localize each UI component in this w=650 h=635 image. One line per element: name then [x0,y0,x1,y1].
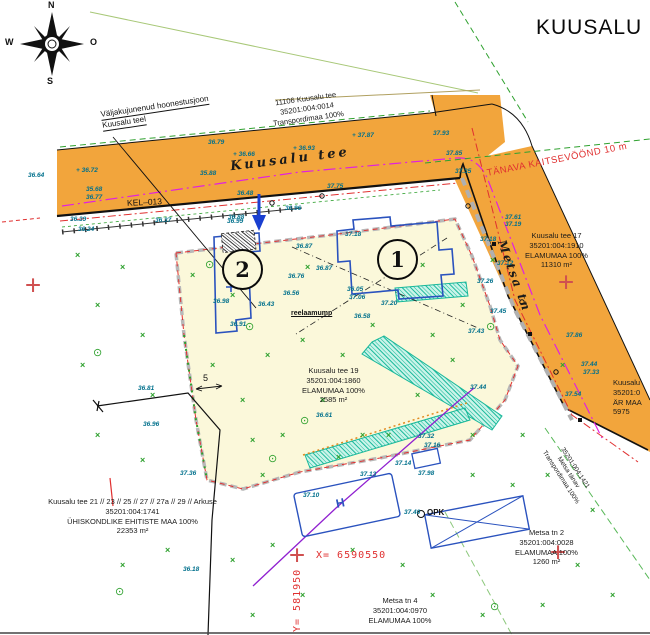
spot-elevation: 36.39 [70,216,86,223]
parcel-line: 35201:004:1910 [504,241,609,251]
bush-icon: × [150,390,155,400]
tree-icon: ⊙ [490,600,499,613]
spot-elevation: 37.93 [433,130,449,137]
manhole-icon [270,201,274,205]
spot-elevation: 37.44 [470,384,486,391]
tree-icon: ⊙ [93,346,102,359]
bush-icon: × [340,350,345,360]
bush-icon: × [510,480,515,490]
bush-icon: × [545,470,550,480]
grid-cross-icon: + [289,540,305,572]
spot-elevation: 36.99 [227,218,243,225]
existing-building-h [294,473,401,537]
bush-icon: × [80,360,85,370]
parcel-line: 22353 m² [15,526,250,536]
spot-elevation: 36.58 [354,313,370,320]
bush-icon: × [230,290,235,300]
spot-elevation: 36.79 [208,139,224,146]
compass-north-label: N [48,0,55,10]
spot-elevation: + 36.72 [76,167,98,174]
spot-elevation: 37.19 [505,221,521,228]
parcel-info-kuusalu-19: Kuusalu tee 19 35201:004:1860 ELAMUMAA 1… [281,366,386,405]
grid-cross-icon: + [25,270,41,302]
bush-icon: × [140,330,145,340]
spot-elevation: 36.56 [283,290,299,297]
bush-icon: × [270,540,275,550]
spot-elevation: 37.13 [360,471,376,478]
bush-icon: × [420,260,425,270]
spot-elevation: 36.98 [213,298,229,305]
tree-icon: ⊙ [268,452,277,465]
spot-elevation: + 37.87 [352,132,374,139]
parcel-line: 1260 m² [494,557,599,567]
spot-elevation: 37.75 [327,183,343,190]
spot-elevation: 37.36 [180,470,196,477]
parcel-line: Kuusalu tee 19 [281,366,386,376]
bush-icon: × [400,560,405,570]
bush-icon: × [460,300,465,310]
kel-annotation: KEL–013 [127,196,162,208]
parcel-line: 5975 [613,407,650,417]
parcel-line: Kuusalu [613,378,650,388]
tree-icon: ⊙ [115,585,124,598]
spot-elevation: 36.18 [183,566,199,573]
building-number-1: 1 [377,239,418,280]
tree-icon: ⊙ [300,414,309,427]
bush-icon: × [450,355,455,365]
bush-icon: × [480,610,485,620]
bush-icon: × [336,452,341,462]
spot-elevation: 35.68 [86,186,102,193]
parcel-info-kuusalu-21: Kuusalu tee 21 // 23 // 25 // 27 // 27a … [15,497,250,536]
spot-elevation: 37.61 [505,214,521,221]
parcel-line: ELAMUMAA 100% [504,251,609,261]
parcel-line: 35201:004:0028 [494,538,599,548]
spot-elevation: 37.54 [565,391,581,398]
spot-elevation: 37.44 [581,361,597,368]
bush-icon: × [360,430,365,440]
parcel-line: ELAMUMAA 100% [281,386,386,396]
parcel-info-right-edge: Kuusalu 35201:0 ÄR MAA 5975 [613,378,650,417]
compass-east-label: O [90,37,97,47]
parcel-line: 35201:004:1860 [281,376,386,386]
building-number-1-text: 1 [390,247,405,272]
parcel-line: 2585 m² [281,395,386,405]
spot-elevation: 36.96 [143,421,159,428]
parcel-line: Metsa tn 4 [330,596,470,606]
spot-elevation: 37.45 [490,308,506,315]
site-plan-canvas: KUUSALU N S W O Kuusalu tee Metsa tn Väl… [0,0,650,635]
bush-icon: × [165,545,170,555]
spot-elevation: 36.91 [230,321,246,328]
light-green-line-top [90,12,478,93]
spot-elevation: 36.77 [86,194,102,201]
spot-elevation: 37.33 [583,369,599,376]
bush-icon: × [250,435,255,445]
spot-elevation: 36.87 [296,243,312,250]
bush-icon: × [520,430,525,440]
tree-icon: ⊙ [245,320,254,333]
bush-icon: × [190,270,195,280]
spot-elevation: 36.43 [258,301,274,308]
spot-elevation: 36.64 [28,172,44,179]
spot-elevation: 36.05 [347,286,363,293]
parcel-line: ELAMUMAA 100% [494,548,599,558]
spot-elevation: 37.16 [424,442,440,449]
utility-box-icon [528,332,532,336]
spot-elevation: 37.85 [446,150,462,157]
spot-elevation: 36.24 [78,226,94,233]
tree-icon: ⊙ [486,320,495,333]
spot-elevation: 37.35 [455,168,471,175]
spot-elevation: 36.61 [316,412,332,419]
spot-elevation: 37.43 [468,328,484,335]
compass-south-label: S [47,76,53,86]
dimension-5-label: 5 [203,373,208,383]
spot-elevation: 37.98 [418,470,434,477]
page-title: KUUSALU [536,16,642,40]
spot-elevation: 36.37 [155,217,171,224]
bush-icon: × [240,395,245,405]
spot-elevation: 36.87 [316,265,332,272]
parcel-line: ÄR MAA [613,398,650,408]
red-tick-left [2,218,40,222]
small-underlined-note: reelaamump [291,310,332,317]
bush-icon: × [430,330,435,340]
building-number-2: 2 [222,249,263,290]
parcel-info-kuusalu-17: Kuusalu tee 17 35201:004:1910 ELAMUMAA 1… [504,231,609,270]
spot-elevation: 37.26 [477,278,493,285]
bush-icon: × [140,455,145,465]
grid-coordinate-y: Y= 581950 [292,569,303,632]
parcel-line: Kuusalu tee 17 [504,231,609,241]
spot-elevation: 37.20 [381,300,397,307]
bush-icon: × [75,250,80,260]
bush-icon: × [250,610,255,620]
spot-elevation: 37.14 [395,460,411,467]
bush-icon: × [95,300,100,310]
bush-icon: × [560,360,565,370]
tree-icon: ⊙ [205,258,214,271]
parcel-line: 35201:004:1741 [15,507,250,517]
bush-icon: × [265,350,270,360]
parcel-line: Kuusalu tee 21 // 23 // 25 // 27 // 27a … [15,497,250,507]
parcel-line: 35201:004:0970 [330,606,470,616]
bush-icon: × [300,335,305,345]
bush-icon: × [120,560,125,570]
compass-west-label: W [5,37,14,47]
building-number-2-text: 2 [235,257,250,282]
bush-icon: × [280,430,285,440]
bush-icon: × [210,360,215,370]
bush-icon: × [95,430,100,440]
spot-elevation: 37.40 [404,509,420,516]
parcel-info-metsa-2: Metsa tn 2 35201:004:0028 ELAMUMAA 100% … [494,528,599,567]
bush-icon: × [305,262,310,272]
opk-label: OPK [427,508,444,517]
bush-icon: × [386,430,391,440]
spot-elevation: 37.10 [303,492,319,499]
bush-icon: × [260,470,265,480]
bush-icon: × [540,600,545,610]
bush-icon: × [370,320,375,330]
bush-icon: × [490,255,495,265]
bush-icon: × [230,555,235,565]
parcel-line: 11310 m² [504,260,609,270]
spot-elevation: 37.32 [418,433,434,440]
utility-box-icon [578,418,582,422]
parcel-line: 35201:0 [613,388,650,398]
bush-icon: × [470,470,475,480]
spot-elevation: 36.96 [285,205,301,212]
compass-rose [20,12,84,76]
bush-icon: × [415,390,420,400]
spot-elevation: 37.86 [566,332,582,339]
spot-elevation: 37.18 [345,231,361,238]
spot-elevation: 37.06 [349,294,365,301]
spot-elevation: 36.76 [288,273,304,280]
parcel-line: ÜHISKONDLIKE EHITISTE MAA 100% [15,517,250,527]
bush-icon: × [610,590,615,600]
parcel-info-metsa-4: Metsa tn 4 35201:004:0970 ELAMUMAA 100% [330,596,470,625]
parcel-line: Metsa tn 2 [494,528,599,538]
parcel-line: ELAMUMAA 100% [330,616,470,626]
spot-elevation: 36.48 [237,190,253,197]
spot-elevation: 35.88 [200,170,216,177]
power-pole-icon [93,400,103,412]
grid-coordinate-x: X= 6590550 [316,550,386,561]
bush-icon: × [470,430,475,440]
grid-cross-icon: + [558,267,574,299]
bush-icon: × [120,262,125,272]
